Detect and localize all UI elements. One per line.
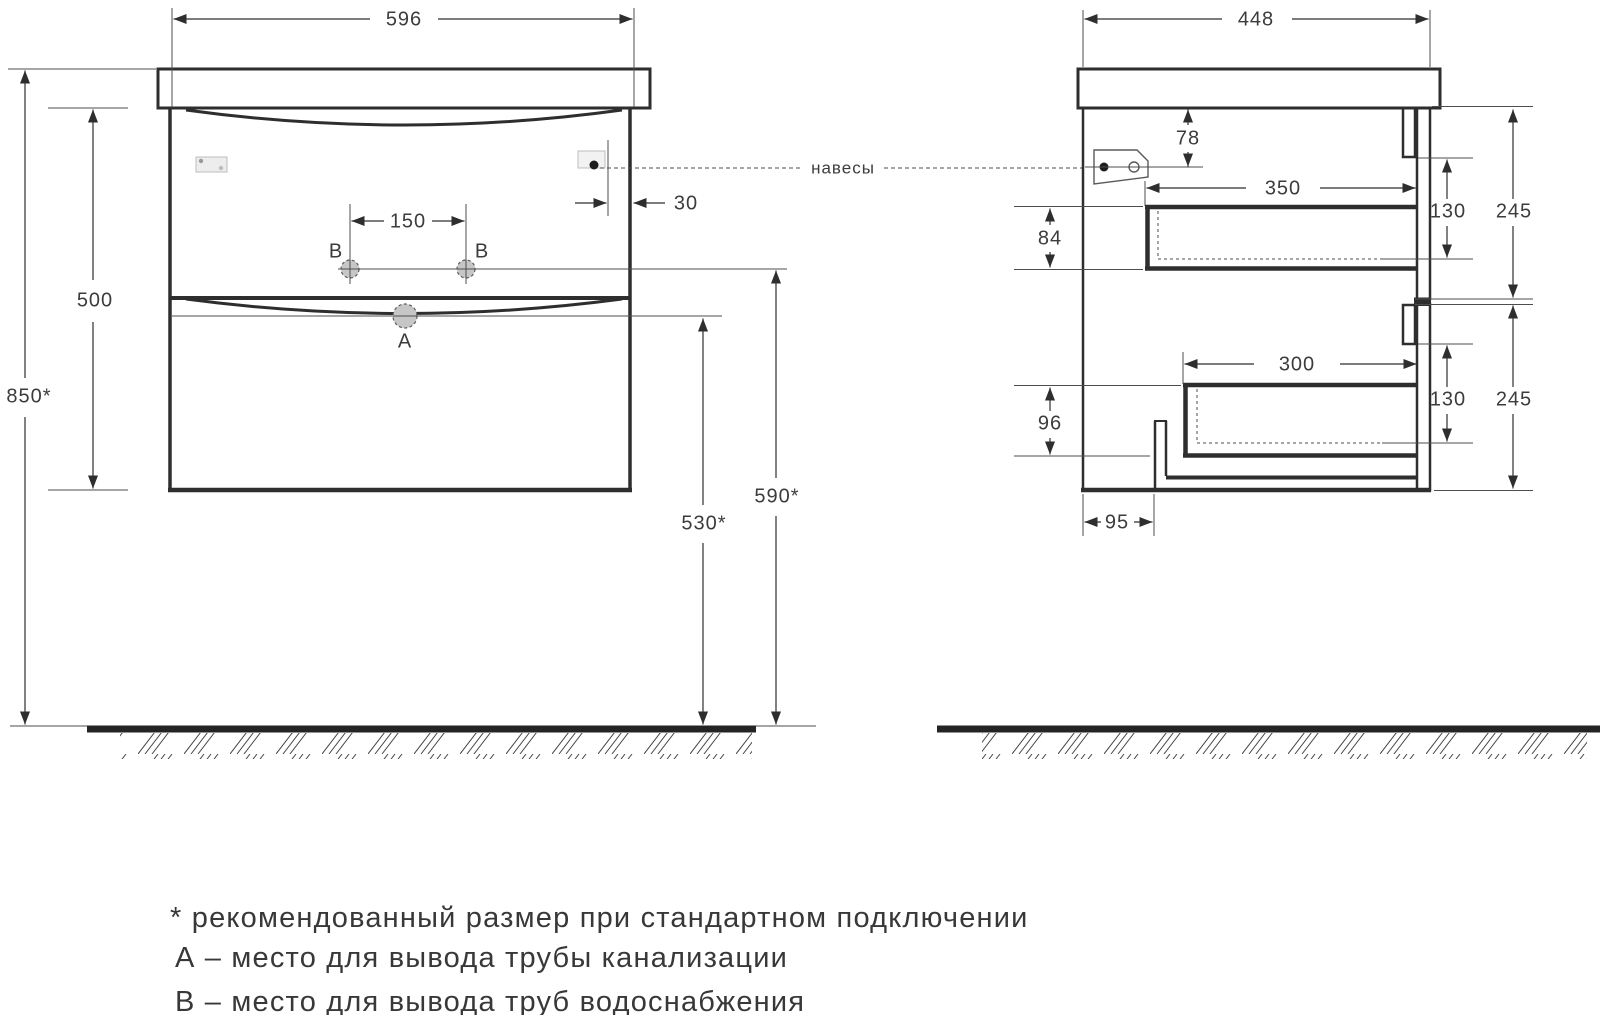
svg-text:500: 500 bbox=[77, 289, 113, 311]
floor-left bbox=[10, 726, 816, 759]
dim-lower-drawer-depth-300: 300 bbox=[1183, 352, 1417, 384]
svg-text:350: 350 bbox=[1265, 177, 1301, 199]
hanger-right-icon bbox=[578, 151, 605, 170]
hanger-left-icon bbox=[196, 157, 227, 172]
svg-text:95: 95 bbox=[1105, 511, 1129, 533]
water-hole-right-label: В bbox=[475, 240, 489, 262]
svg-text:78: 78 bbox=[1176, 127, 1200, 149]
front-view: В В А 596 500 850* bbox=[6, 8, 799, 725]
technical-drawing-page: В В А 596 500 850* bbox=[0, 0, 1600, 1015]
note-legend-b: В – место для вывода труб водоснабжения bbox=[175, 986, 805, 1015]
dim-hanger-drop-78: 78 bbox=[1176, 110, 1200, 167]
dim-water-height-590: 590* bbox=[754, 271, 799, 725]
drain-hole-label: А bbox=[398, 330, 412, 352]
dim-holes-spacing-150: 150 bbox=[350, 204, 466, 284]
dim-upper-clearance-84: 84 bbox=[1014, 207, 1143, 270]
notes-block: * рекомендованный размер при стандартном… bbox=[170, 902, 1029, 1015]
svg-text:130: 130 bbox=[1430, 388, 1466, 410]
dim-pipe-offset-95: 95 bbox=[1083, 494, 1154, 536]
svg-text:850*: 850* bbox=[6, 385, 51, 407]
floor-left-hatching bbox=[120, 733, 752, 759]
lower-drawer-rail bbox=[1403, 305, 1415, 344]
dim-upper-drawer-depth-350: 350 bbox=[1145, 177, 1416, 206]
dim-depth-448: 448 bbox=[1083, 8, 1430, 67]
dim-lower-drawer-height-130: 130 bbox=[1430, 346, 1466, 442]
note-legend-a: А – место для вывода трубы канализации bbox=[175, 942, 788, 974]
lower-drawer-face bbox=[1417, 304, 1430, 490]
dim-cabinet-height-500: 500 bbox=[48, 108, 128, 490]
front-basin-curve bbox=[186, 110, 622, 125]
svg-text:84: 84 bbox=[1038, 227, 1062, 249]
side-view: 448 78 350 84 130 bbox=[1014, 8, 1533, 536]
floor-right bbox=[937, 729, 1600, 759]
upper-drawer-face bbox=[1417, 108, 1430, 299]
hangers-callout-label: навесы bbox=[811, 158, 875, 177]
svg-text:245: 245 bbox=[1496, 388, 1532, 410]
vanity-dimension-drawing: В В А 596 500 850* bbox=[0, 0, 1600, 1015]
water-hole-left-label: В bbox=[329, 240, 343, 262]
svg-text:300: 300 bbox=[1279, 353, 1315, 375]
svg-text:596: 596 bbox=[386, 8, 422, 30]
svg-text:96: 96 bbox=[1038, 412, 1062, 434]
upper-drawer-rail bbox=[1403, 108, 1415, 157]
hanger-bracket-icon bbox=[1085, 150, 1203, 184]
upper-drawer-box bbox=[1145, 158, 1473, 269]
dim-total-height-850: 850* bbox=[6, 69, 156, 725]
hangers-callout: навесы bbox=[600, 158, 1086, 177]
floor-right-hatching bbox=[982, 733, 1587, 759]
svg-text:590*: 590* bbox=[754, 485, 799, 507]
dim-width-596: 596 bbox=[172, 8, 634, 107]
svg-text:245: 245 bbox=[1496, 200, 1532, 222]
dim-drain-height-530: 530* bbox=[681, 319, 726, 725]
svg-text:150: 150 bbox=[390, 210, 426, 232]
svg-text:530*: 530* bbox=[681, 512, 726, 534]
side-countertop bbox=[1078, 69, 1440, 108]
note-recommended: * рекомендованный размер при стандартном… bbox=[170, 902, 1029, 934]
front-countertop bbox=[158, 69, 650, 108]
svg-text:448: 448 bbox=[1238, 8, 1274, 30]
svg-text:30: 30 bbox=[674, 192, 698, 214]
dim-upper-drawer-height-130: 130 bbox=[1430, 160, 1466, 258]
svg-text:130: 130 bbox=[1430, 200, 1466, 222]
